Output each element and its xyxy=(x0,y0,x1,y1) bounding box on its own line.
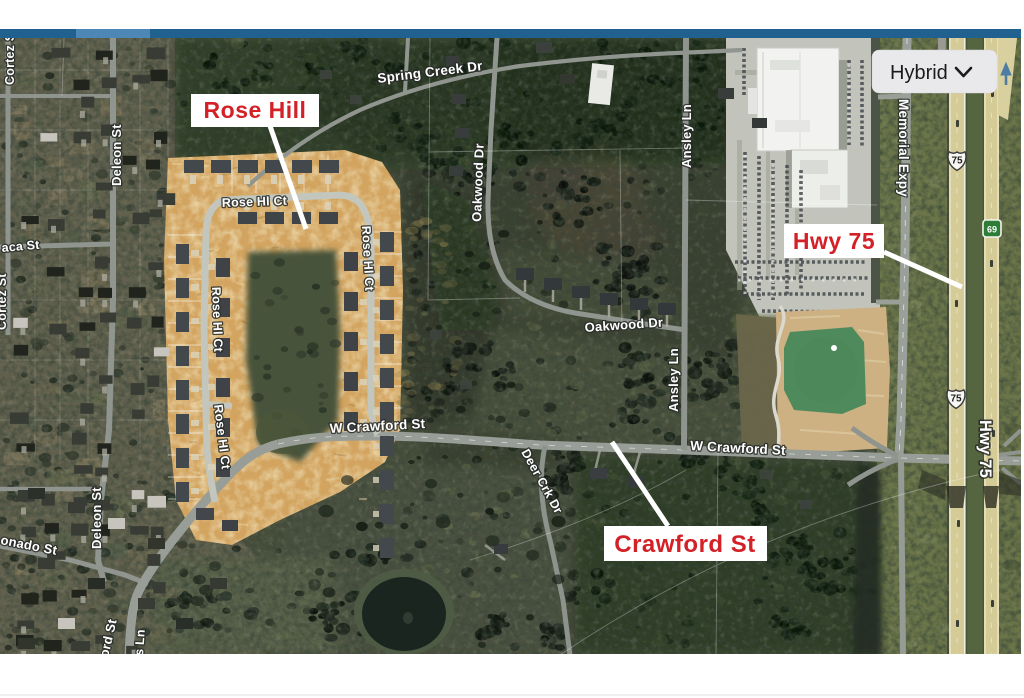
svg-text:75: 75 xyxy=(950,394,962,405)
svg-text:Rose Hl Ct: Rose Hl Ct xyxy=(209,287,225,353)
svg-text:Crawford St: Crawford St xyxy=(614,531,756,558)
svg-text:Oakwood Dr: Oakwood Dr xyxy=(469,143,487,222)
svg-text:69: 69 xyxy=(987,225,997,235)
svg-text:Deleon St: Deleon St xyxy=(109,124,124,186)
svg-text:Hwy 75: Hwy 75 xyxy=(976,420,994,478)
svg-text:Cortez St: Cortez St xyxy=(0,273,9,330)
svg-text:Rose Hl Ct: Rose Hl Ct xyxy=(222,194,288,210)
svg-text:s Ln: s Ln xyxy=(132,629,148,656)
svg-text:Ansley Ln: Ansley Ln xyxy=(666,348,681,412)
svg-text:75: 75 xyxy=(951,156,963,167)
svg-text:Rose Hill: Rose Hill xyxy=(204,97,307,123)
svg-text:Deleon St: Deleon St xyxy=(89,487,104,549)
svg-text:Cortez S: Cortez S xyxy=(3,33,17,85)
svg-text:Ansley Ln: Ansley Ln xyxy=(679,104,694,168)
svg-text:Hybrid: Hybrid xyxy=(890,62,948,84)
svg-text:Hwy 75: Hwy 75 xyxy=(793,228,875,254)
svg-text:Memorial Expy: Memorial Expy xyxy=(896,99,911,197)
